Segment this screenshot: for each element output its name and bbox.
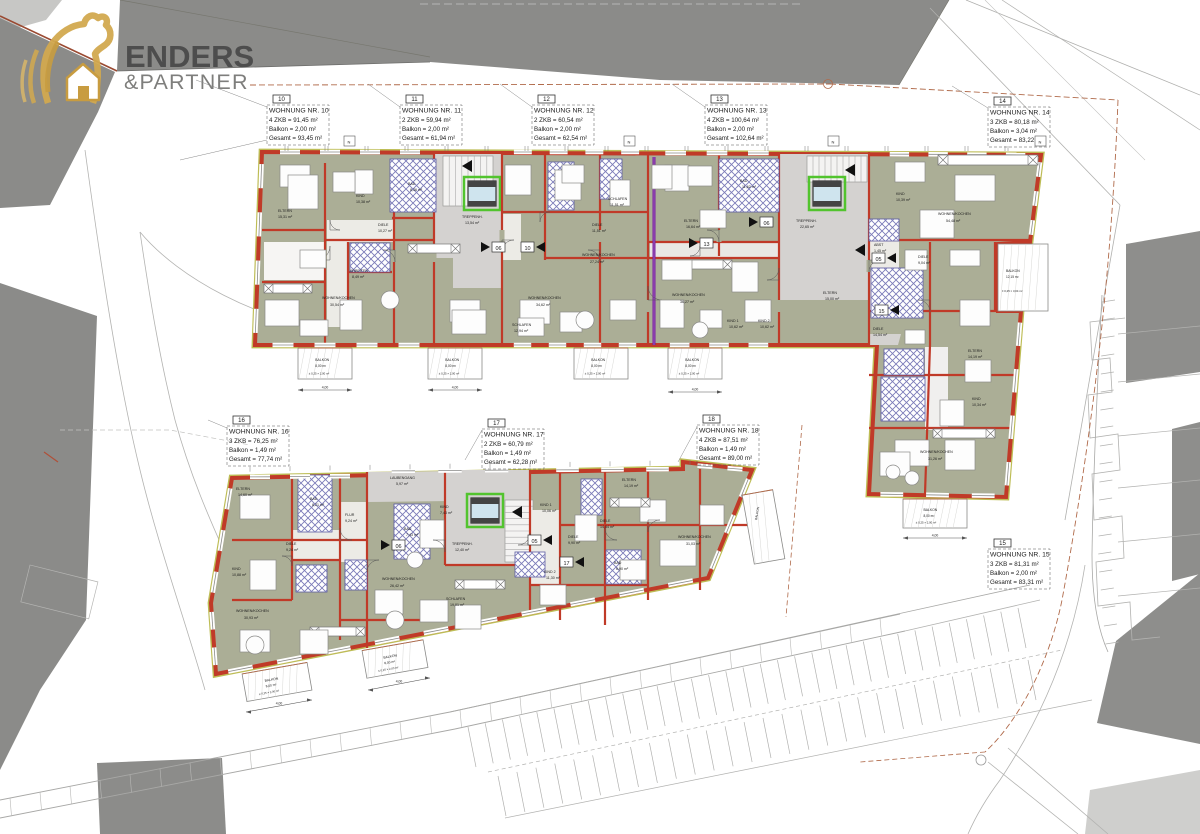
svg-text:DIELE: DIELE	[918, 255, 929, 259]
svg-text:KIND: KIND	[232, 567, 241, 571]
svg-text:FLUR: FLUR	[345, 513, 355, 517]
svg-text:ARBEITEN: ARBEITEN	[350, 269, 368, 273]
svg-text:Gesamt = 77,74 m²: Gesamt = 77,74 m²	[229, 456, 282, 463]
svg-text:WOHNEN/KOCHEN: WOHNEN/KOCHEN	[582, 253, 615, 257]
svg-text:13: 13	[716, 97, 723, 103]
svg-text:3 ZKB = 76,25 m²: 3 ZKB = 76,25 m²	[229, 438, 278, 445]
svg-text:Balkon = 1,49 m²: Balkon = 1,49 m²	[484, 450, 531, 457]
svg-text:17: 17	[493, 421, 500, 427]
svg-text:ABST: ABST	[874, 243, 884, 247]
svg-text:Balkon = 2,00 m²: Balkon = 2,00 m²	[402, 126, 449, 133]
svg-text:14,54 m²: 14,54 m²	[873, 333, 888, 337]
svg-text:31,26 m²: 31,26 m²	[928, 457, 943, 461]
svg-text:± 0,25 × 2,00 m²: ± 0,25 × 2,00 m²	[309, 371, 329, 375]
svg-text:WOHNUNG NR. 18: WOHNUNG NR. 18	[699, 428, 759, 435]
svg-text:13,54 m²: 13,54 m²	[465, 221, 480, 225]
svg-text:WOHNUNG NR. 17: WOHNUNG NR. 17	[484, 432, 544, 439]
svg-text:DIELE: DIELE	[592, 223, 603, 227]
svg-text:ELTERN: ELTERN	[684, 219, 698, 223]
svg-text:14,54 m²: 14,54 m²	[600, 525, 615, 529]
svg-text:± 0,25 × 2,00 m²: ± 0,25 × 2,00 m²	[679, 371, 699, 375]
svg-text:Gesamt = 93,45 m²: Gesamt = 93,45 m²	[269, 135, 322, 142]
svg-text:11,30 m²: 11,30 m²	[546, 576, 561, 580]
svg-text:Gesamt = 89,00 m²: Gesamt = 89,00 m²	[699, 455, 752, 462]
svg-text:Balkon = 2,00 m²: Balkon = 2,00 m²	[707, 126, 754, 133]
svg-text:10,88 m²: 10,88 m²	[232, 573, 247, 577]
svg-text:DIELE: DIELE	[286, 542, 297, 546]
svg-text:06: 06	[495, 246, 501, 252]
svg-text:8,00 m²: 8,00 m²	[685, 364, 696, 368]
svg-text:N: N	[628, 140, 631, 145]
svg-text:DIELE: DIELE	[568, 535, 579, 539]
svg-text:ELTERN: ELTERN	[278, 209, 292, 213]
svg-text:8,49 m²: 8,49 m²	[352, 275, 365, 279]
svg-text:BALKON: BALKON	[1006, 269, 1020, 273]
svg-text:Gesamt = 62,28 m²: Gesamt = 62,28 m²	[484, 459, 537, 466]
svg-text:WOHNUNG NR. 16: WOHNUNG NR. 16	[229, 429, 289, 436]
svg-text:4,00: 4,00	[276, 702, 283, 706]
svg-text:WOHNUNG NR. 14: WOHNUNG NR. 14	[990, 110, 1050, 117]
svg-text:WOHNUNG NR. 15: WOHNUNG NR. 15	[990, 552, 1050, 559]
svg-text:2 ZKB = 59,94 m²: 2 ZKB = 59,94 m²	[402, 117, 451, 124]
svg-text:WOHNUNG NR. 11: WOHNUNG NR. 11	[402, 108, 461, 115]
svg-text:ELTERN: ELTERN	[968, 349, 982, 353]
svg-text:BAD: BAD	[740, 179, 748, 183]
svg-text:ELTERN: ELTERN	[236, 487, 250, 491]
svg-text:8,00 m²: 8,00 m²	[591, 364, 602, 368]
svg-text:KIND 1: KIND 1	[540, 503, 552, 507]
svg-text:11,51 m²: 11,51 m²	[610, 203, 625, 207]
svg-text:BAD: BAD	[404, 527, 412, 531]
svg-text:7,43 m²: 7,43 m²	[406, 533, 419, 537]
svg-text:3 ZKB = 80,18 m²: 3 ZKB = 80,18 m²	[990, 119, 1039, 126]
svg-text:10,62 m²: 10,62 m²	[760, 325, 775, 329]
svg-text:9,04 m²: 9,04 m²	[918, 261, 931, 265]
svg-text:10: 10	[524, 246, 530, 252]
svg-text:SCHLAFEN: SCHLAFEN	[446, 597, 466, 601]
svg-text:Balkon = 2,00 m²: Balkon = 2,00 m²	[990, 570, 1037, 577]
svg-text:13: 13	[703, 242, 709, 248]
svg-text:WOHNEN/KOCHEN: WOHNEN/KOCHEN	[382, 577, 415, 581]
svg-text:18: 18	[708, 417, 715, 423]
svg-text:WOHNUNG NR. 12: WOHNUNG NR. 12	[534, 108, 594, 115]
svg-text:N: N	[348, 140, 351, 145]
svg-text:30,93 m²: 30,93 m²	[244, 616, 259, 620]
svg-text:8,36 m²: 8,36 m²	[410, 188, 423, 192]
svg-text:4,00: 4,00	[396, 680, 403, 684]
svg-text:± 0,25 × 2,00 m²: ± 0,25 × 2,00 m²	[439, 371, 459, 375]
svg-text:9,24 m²: 9,24 m²	[345, 519, 358, 523]
svg-text:WOHNEN/KOCHEN: WOHNEN/KOCHEN	[920, 450, 953, 454]
svg-text:11,51 m²: 11,51 m²	[592, 229, 607, 233]
svg-text:10,62 m²: 10,62 m²	[729, 325, 744, 329]
svg-text:N: N	[1039, 140, 1042, 145]
svg-text:17: 17	[563, 561, 569, 567]
svg-text:36,27 m²: 36,27 m²	[680, 300, 695, 304]
svg-text:Gesamt = 62,54 m²: Gesamt = 62,54 m²	[534, 135, 587, 142]
svg-text:TREPPENH.: TREPPENH.	[452, 542, 473, 546]
svg-text:KIND 2: KIND 2	[758, 319, 770, 323]
svg-text:14,60 m²: 14,60 m²	[238, 493, 253, 497]
svg-text:14,19 m²: 14,19 m²	[624, 484, 639, 488]
svg-text:WOHNEN/KOCHEN: WOHNEN/KOCHEN	[678, 535, 711, 539]
svg-text:BAD: BAD	[408, 182, 416, 186]
svg-text:DIELE: DIELE	[600, 519, 611, 523]
svg-text:14,19 m²: 14,19 m²	[968, 355, 983, 359]
svg-text:SCHLAFEN: SCHLAFEN	[608, 197, 628, 201]
svg-text:4,00: 4,00	[452, 386, 459, 390]
svg-text:05: 05	[531, 539, 537, 545]
svg-text:Balkon = 2,00 m²: Balkon = 2,00 m²	[269, 126, 316, 133]
svg-text:26,42 m²: 26,42 m²	[390, 584, 405, 588]
svg-text:12,94 m²: 12,94 m²	[514, 329, 529, 333]
svg-text:KIND 1: KIND 1	[727, 319, 739, 323]
svg-text:BALKON: BALKON	[315, 358, 329, 362]
svg-text:BALKON: BALKON	[591, 358, 605, 362]
svg-text:27,24 m²: 27,24 m²	[590, 260, 605, 264]
svg-text:6,90 m²: 6,90 m²	[616, 567, 629, 571]
svg-text:8,21 m²: 8,21 m²	[312, 503, 325, 507]
svg-text:5,97 m²: 5,97 m²	[396, 482, 409, 486]
svg-text:2 ZKB = 60,54 m²: 2 ZKB = 60,54 m²	[534, 117, 583, 124]
svg-text:4,00: 4,00	[322, 386, 329, 390]
svg-text:10: 10	[278, 97, 285, 103]
svg-text:Balkon = 2,00 m²: Balkon = 2,00 m²	[534, 126, 581, 133]
svg-text:Gesamt = 102,64 m²: Gesamt = 102,64 m²	[707, 135, 764, 142]
svg-text:Gesamt = 83,31 m²: Gesamt = 83,31 m²	[990, 579, 1043, 586]
svg-text:10,39 m²: 10,39 m²	[896, 198, 911, 202]
svg-text:N: N	[832, 140, 835, 145]
svg-text:34,62 m²: 34,62 m²	[536, 303, 551, 307]
svg-text:DIELE: DIELE	[873, 327, 884, 331]
svg-text:4 ZKB = 100,64 m²: 4 ZKB = 100,64 m²	[707, 117, 759, 124]
svg-text:WOHNEN/KOCHEN: WOHNEN/KOCHEN	[672, 293, 705, 297]
svg-text:7,43 m²: 7,43 m²	[440, 511, 453, 515]
svg-text:Balkon = 1,49 m²: Balkon = 1,49 m²	[229, 447, 276, 454]
svg-text:ELTERN: ELTERN	[823, 291, 837, 295]
svg-text:4 ZKB = 91,45 m²: 4 ZKB = 91,45 m²	[269, 117, 318, 124]
svg-text:15,31 m²: 15,31 m²	[278, 215, 293, 219]
svg-text:12: 12	[543, 97, 550, 103]
svg-text:16,64 m²: 16,64 m²	[686, 225, 701, 229]
svg-text:10,06 m²: 10,06 m²	[542, 509, 557, 513]
svg-text:05: 05	[875, 257, 881, 263]
svg-text:BALKON: BALKON	[685, 358, 699, 362]
svg-text:4,00: 4,00	[932, 534, 939, 538]
svg-text:KIND: KIND	[356, 194, 365, 198]
svg-text:TREPPENH.: TREPPENH.	[796, 219, 817, 223]
svg-text:TREPPENH.: TREPPENH.	[462, 215, 483, 219]
svg-text:&PARTNER: &PARTNER	[124, 70, 249, 94]
svg-text:KIND: KIND	[972, 397, 981, 401]
svg-text:9,90 m²: 9,90 m²	[568, 541, 581, 545]
svg-text:± 0,25 × 2,00 m²: ± 0,25 × 2,00 m²	[916, 521, 936, 525]
svg-text:10,27 m²: 10,27 m²	[378, 229, 393, 233]
svg-text:Balkon = 1,49 m²: Balkon = 1,49 m²	[699, 446, 746, 453]
svg-text:06: 06	[395, 544, 401, 550]
svg-text:11,62 m²: 11,62 m²	[742, 185, 757, 189]
svg-text:14: 14	[999, 99, 1006, 105]
svg-text:± 0,25 × 3,04 m²: ± 0,25 × 3,04 m²	[1002, 289, 1022, 293]
svg-text:8,00 m²: 8,00 m²	[445, 364, 456, 368]
svg-text:BALKON: BALKON	[924, 508, 938, 512]
svg-text:2 ZKB = 60,79 m²: 2 ZKB = 60,79 m²	[484, 441, 533, 448]
svg-text:19,01 m²: 19,01 m²	[450, 603, 465, 607]
svg-text:ELTERN: ELTERN	[622, 478, 636, 482]
svg-text:± 0,25 × 2,00 m²: ± 0,25 × 2,00 m²	[585, 371, 605, 375]
svg-text:1,45 m²: 1,45 m²	[874, 249, 887, 253]
svg-text:15: 15	[878, 309, 884, 315]
svg-text:WOHNEN/KOCHEN: WOHNEN/KOCHEN	[938, 212, 971, 216]
svg-text:WOHNUNG NR. 13: WOHNUNG NR. 13	[707, 108, 767, 115]
svg-text:22,65 m²: 22,65 m²	[800, 225, 815, 229]
svg-text:31,03 m²: 31,03 m²	[686, 542, 701, 546]
svg-text:15: 15	[999, 541, 1006, 547]
svg-text:12,15 m²: 12,15 m²	[1006, 275, 1019, 279]
svg-text:BAD: BAD	[310, 497, 318, 501]
svg-text:SCHLAFEN: SCHLAFEN	[512, 323, 532, 327]
svg-text:KIND: KIND	[440, 505, 449, 509]
svg-text:DIELE: DIELE	[378, 223, 389, 227]
svg-text:12,40 m²: 12,40 m²	[455, 548, 470, 552]
svg-text:Gesamt = 61,94 m²: Gesamt = 61,94 m²	[402, 135, 455, 142]
svg-text:3 ZKB = 81,31 m²: 3 ZKB = 81,31 m²	[990, 561, 1039, 568]
svg-text:KIND: KIND	[896, 192, 905, 196]
svg-text:54,48 m²: 54,48 m²	[946, 219, 961, 223]
svg-text:15,00 m²: 15,00 m²	[825, 297, 840, 301]
svg-text:10,38 m²: 10,38 m²	[356, 200, 371, 204]
svg-text:8,00 m²: 8,00 m²	[924, 514, 935, 518]
svg-text:16: 16	[238, 418, 245, 424]
svg-text:KIND 2: KIND 2	[544, 570, 556, 574]
svg-text:8,00 m²: 8,00 m²	[315, 364, 326, 368]
svg-text:10,34 m²: 10,34 m²	[972, 403, 987, 407]
svg-text:Balkon = 3,04 m²: Balkon = 3,04 m²	[990, 128, 1037, 135]
svg-text:30,54 m²: 30,54 m²	[330, 303, 345, 307]
svg-text:WOHNEN/KOCHEN: WOHNEN/KOCHEN	[528, 296, 561, 300]
svg-text:WOHNEN/KOCHEN: WOHNEN/KOCHEN	[322, 296, 355, 300]
svg-text:BAD: BAD	[614, 561, 622, 565]
svg-text:WOHNEN/KOCHEN: WOHNEN/KOCHEN	[236, 609, 269, 613]
svg-text:WOHNUNG NR. 10: WOHNUNG NR. 10	[269, 108, 329, 115]
svg-text:9,24 m²: 9,24 m²	[286, 548, 299, 552]
svg-text:4 ZKB = 87,51 m²: 4 ZKB = 87,51 m²	[699, 437, 748, 444]
svg-text:LAUBENGANG: LAUBENGANG	[390, 476, 415, 480]
svg-text:06: 06	[763, 221, 769, 227]
svg-text:ENDERS: ENDERS	[125, 39, 254, 74]
svg-text:4,00: 4,00	[692, 388, 699, 392]
svg-text:BALKON: BALKON	[445, 358, 459, 362]
svg-text:11: 11	[411, 97, 418, 103]
